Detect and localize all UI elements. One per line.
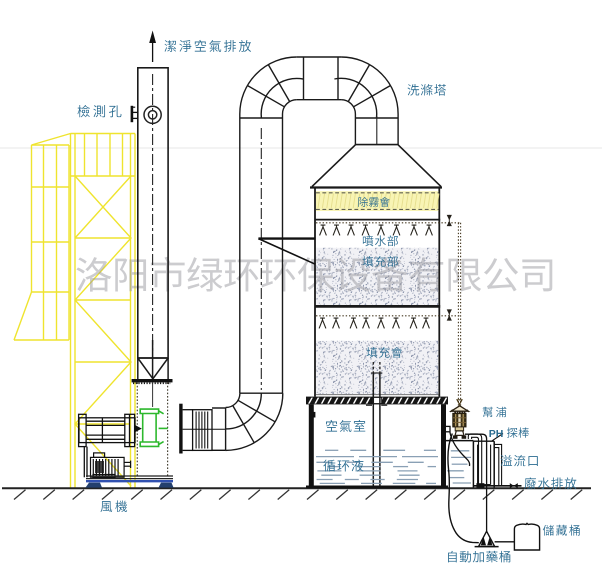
svg-text:PH: PH bbox=[489, 428, 504, 440]
